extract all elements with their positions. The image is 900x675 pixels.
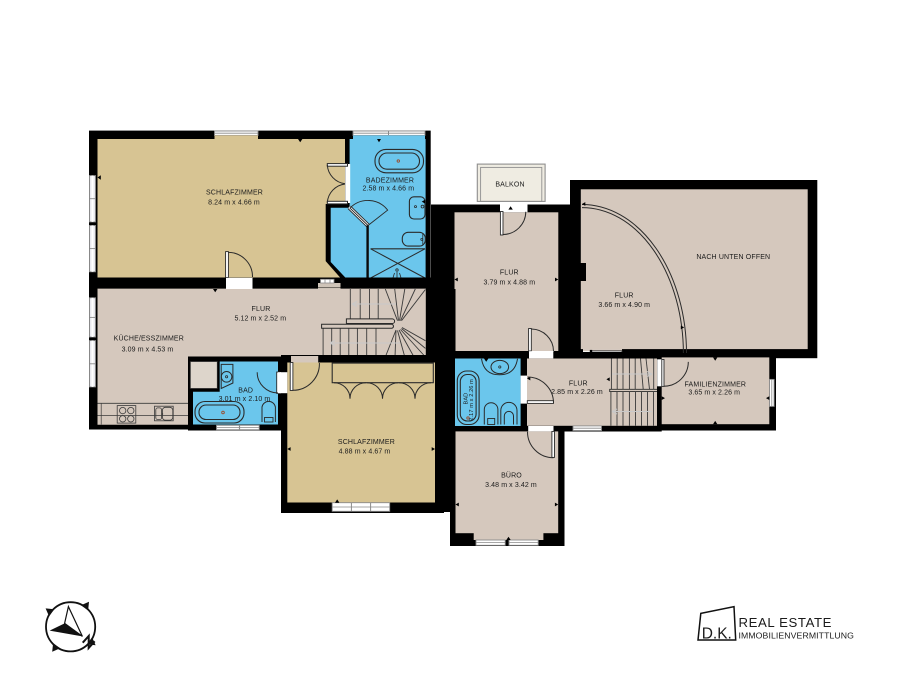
svg-text:BÜRO: BÜRO [501, 472, 522, 480]
svg-text:FLUR: FLUR [569, 380, 588, 387]
svg-text:8.24 m x 4.66 m: 8.24 m x 4.66 m [208, 200, 260, 207]
svg-text:BALKON: BALKON [495, 181, 524, 188]
svg-text:3.09 m x 4.53 m: 3.09 m x 4.53 m [122, 347, 174, 354]
svg-text:REAL ESTATE: REAL ESTATE [739, 615, 833, 630]
svg-text:BAD: BAD [238, 387, 253, 394]
svg-text:2.85 m x 2.26 m: 2.85 m x 2.26 m [551, 389, 603, 396]
svg-text:FLUR: FLUR [252, 306, 271, 313]
svg-text:KÜCHE/ESSZIMMER: KÜCHE/ESSZIMMER [114, 335, 184, 343]
svg-text:SCHLAFZIMMER: SCHLAFZIMMER [206, 190, 263, 197]
svg-text:BADEZIMMER: BADEZIMMER [366, 178, 414, 185]
svg-text:2.17 m x 2.26 m: 2.17 m x 2.26 m [469, 379, 475, 421]
svg-text:3.65 m x 2.26 m: 3.65 m x 2.26 m [688, 389, 740, 396]
svg-text:2.58 m x 4.66 m: 2.58 m x 4.66 m [362, 186, 414, 193]
svg-text:4.88 m x 4.67 m: 4.88 m x 4.67 m [339, 449, 391, 456]
svg-text:FAMILIENZIMMER: FAMILIENZIMMER [684, 381, 746, 388]
svg-text:NACH UNTEN OFFEN: NACH UNTEN OFFEN [696, 254, 770, 261]
svg-text:3.66 m x 4.90 m: 3.66 m x 4.90 m [598, 302, 650, 309]
svg-text:IMMOBILIENVERMITTLUNG: IMMOBILIENVERMITTLUNG [739, 631, 855, 641]
svg-text:FLUR: FLUR [500, 270, 519, 277]
svg-text:3.48 m x 3.42 m: 3.48 m x 3.42 m [485, 482, 537, 489]
svg-text:5.12 m x 2.52 m: 5.12 m x 2.52 m [234, 316, 286, 323]
svg-text:D.K.: D.K. [702, 625, 732, 642]
svg-text:SCHLAFZIMMER: SCHLAFZIMMER [338, 439, 395, 446]
svg-text:3.01 m x 2.10 m: 3.01 m x 2.10 m [219, 396, 271, 403]
svg-text:FLUR: FLUR [615, 293, 634, 300]
svg-text:3.79 m x 4.88 m: 3.79 m x 4.88 m [483, 280, 535, 287]
